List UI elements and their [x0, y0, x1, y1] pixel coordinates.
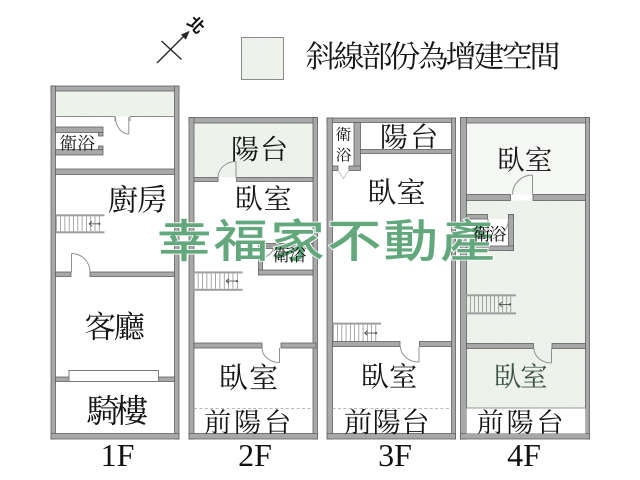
svg-text:2F: 2F	[238, 437, 272, 473]
svg-text:4F: 4F	[507, 437, 541, 473]
svg-text:1F: 1F	[101, 437, 135, 473]
svg-text:3F: 3F	[378, 437, 412, 473]
